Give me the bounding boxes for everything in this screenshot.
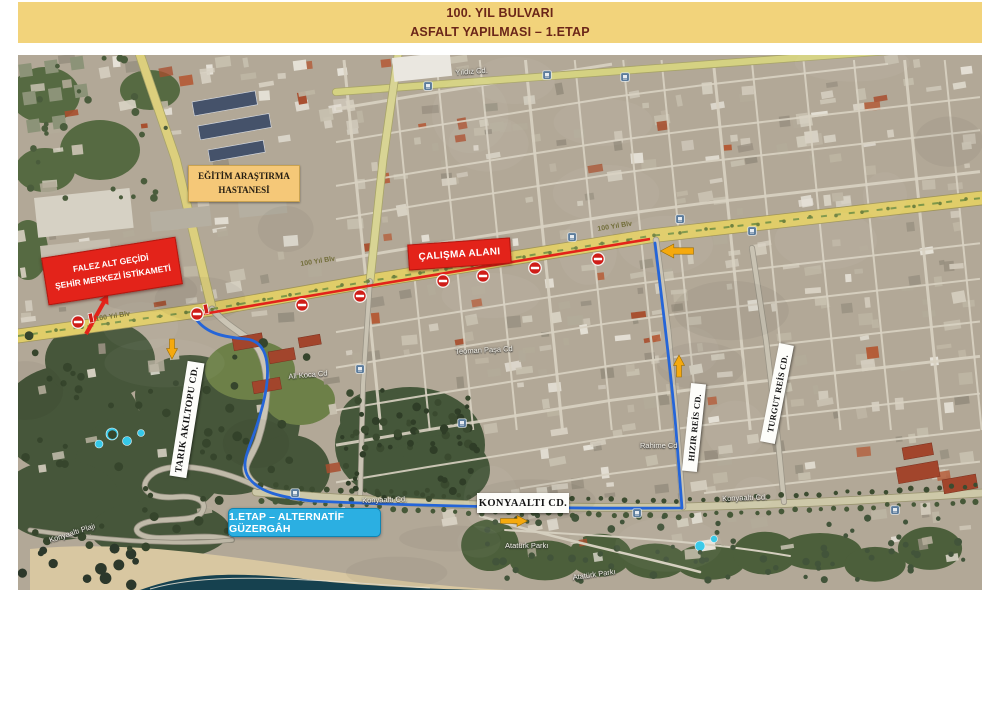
street-label-konyaalti: KONYAALTI CD. [477, 493, 569, 513]
no-entry-icon [529, 262, 542, 275]
road-shield-icon [891, 506, 900, 515]
no-entry-icon [296, 299, 309, 312]
no-entry-icon [354, 290, 367, 303]
road-shield-icon [424, 82, 433, 91]
no-entry-icon [437, 275, 450, 288]
no-entry-icon [72, 316, 85, 329]
road-shield-icon [543, 71, 552, 80]
no-entry-icon [191, 308, 204, 321]
map-street-text: Atatürk Parkı [505, 541, 548, 550]
map-street-text: Konyaaltı Cd. [722, 492, 767, 503]
map-street-text: Rahime Cd [640, 441, 678, 450]
no-entry-icon [477, 270, 490, 283]
no-entry-icon [592, 253, 605, 266]
satellite-map: FALEZ ALT GEÇİDİ ŞEHİR MERKEZİ İSTİKAMET… [18, 55, 982, 590]
road-shield-icon [356, 365, 365, 374]
road-shield-icon [748, 227, 757, 236]
road-shield-icon [458, 419, 467, 428]
road-shield-icon [568, 233, 577, 242]
road-shield-icon [291, 489, 300, 498]
title-line2: ASFALT YAPILMASI – 1.ETAP [18, 23, 982, 42]
alternative-route-label: 1.ETAP – ALTERNATİF GÜZERGÂH [228, 508, 381, 537]
hospital-label: EĞİTİM ARAŞTIRMA HASTANESİ [188, 165, 300, 202]
title-line1: 100. YIL BULVARI [18, 4, 982, 23]
road-shield-icon [633, 509, 642, 518]
map-street-text: Konyaaltı Cd. [362, 494, 407, 505]
road-shield-icon [676, 215, 685, 224]
title-banner: 100. YIL BULVARI ASFALT YAPILMASI – 1.ET… [18, 2, 982, 43]
road-shield-icon [621, 73, 630, 82]
